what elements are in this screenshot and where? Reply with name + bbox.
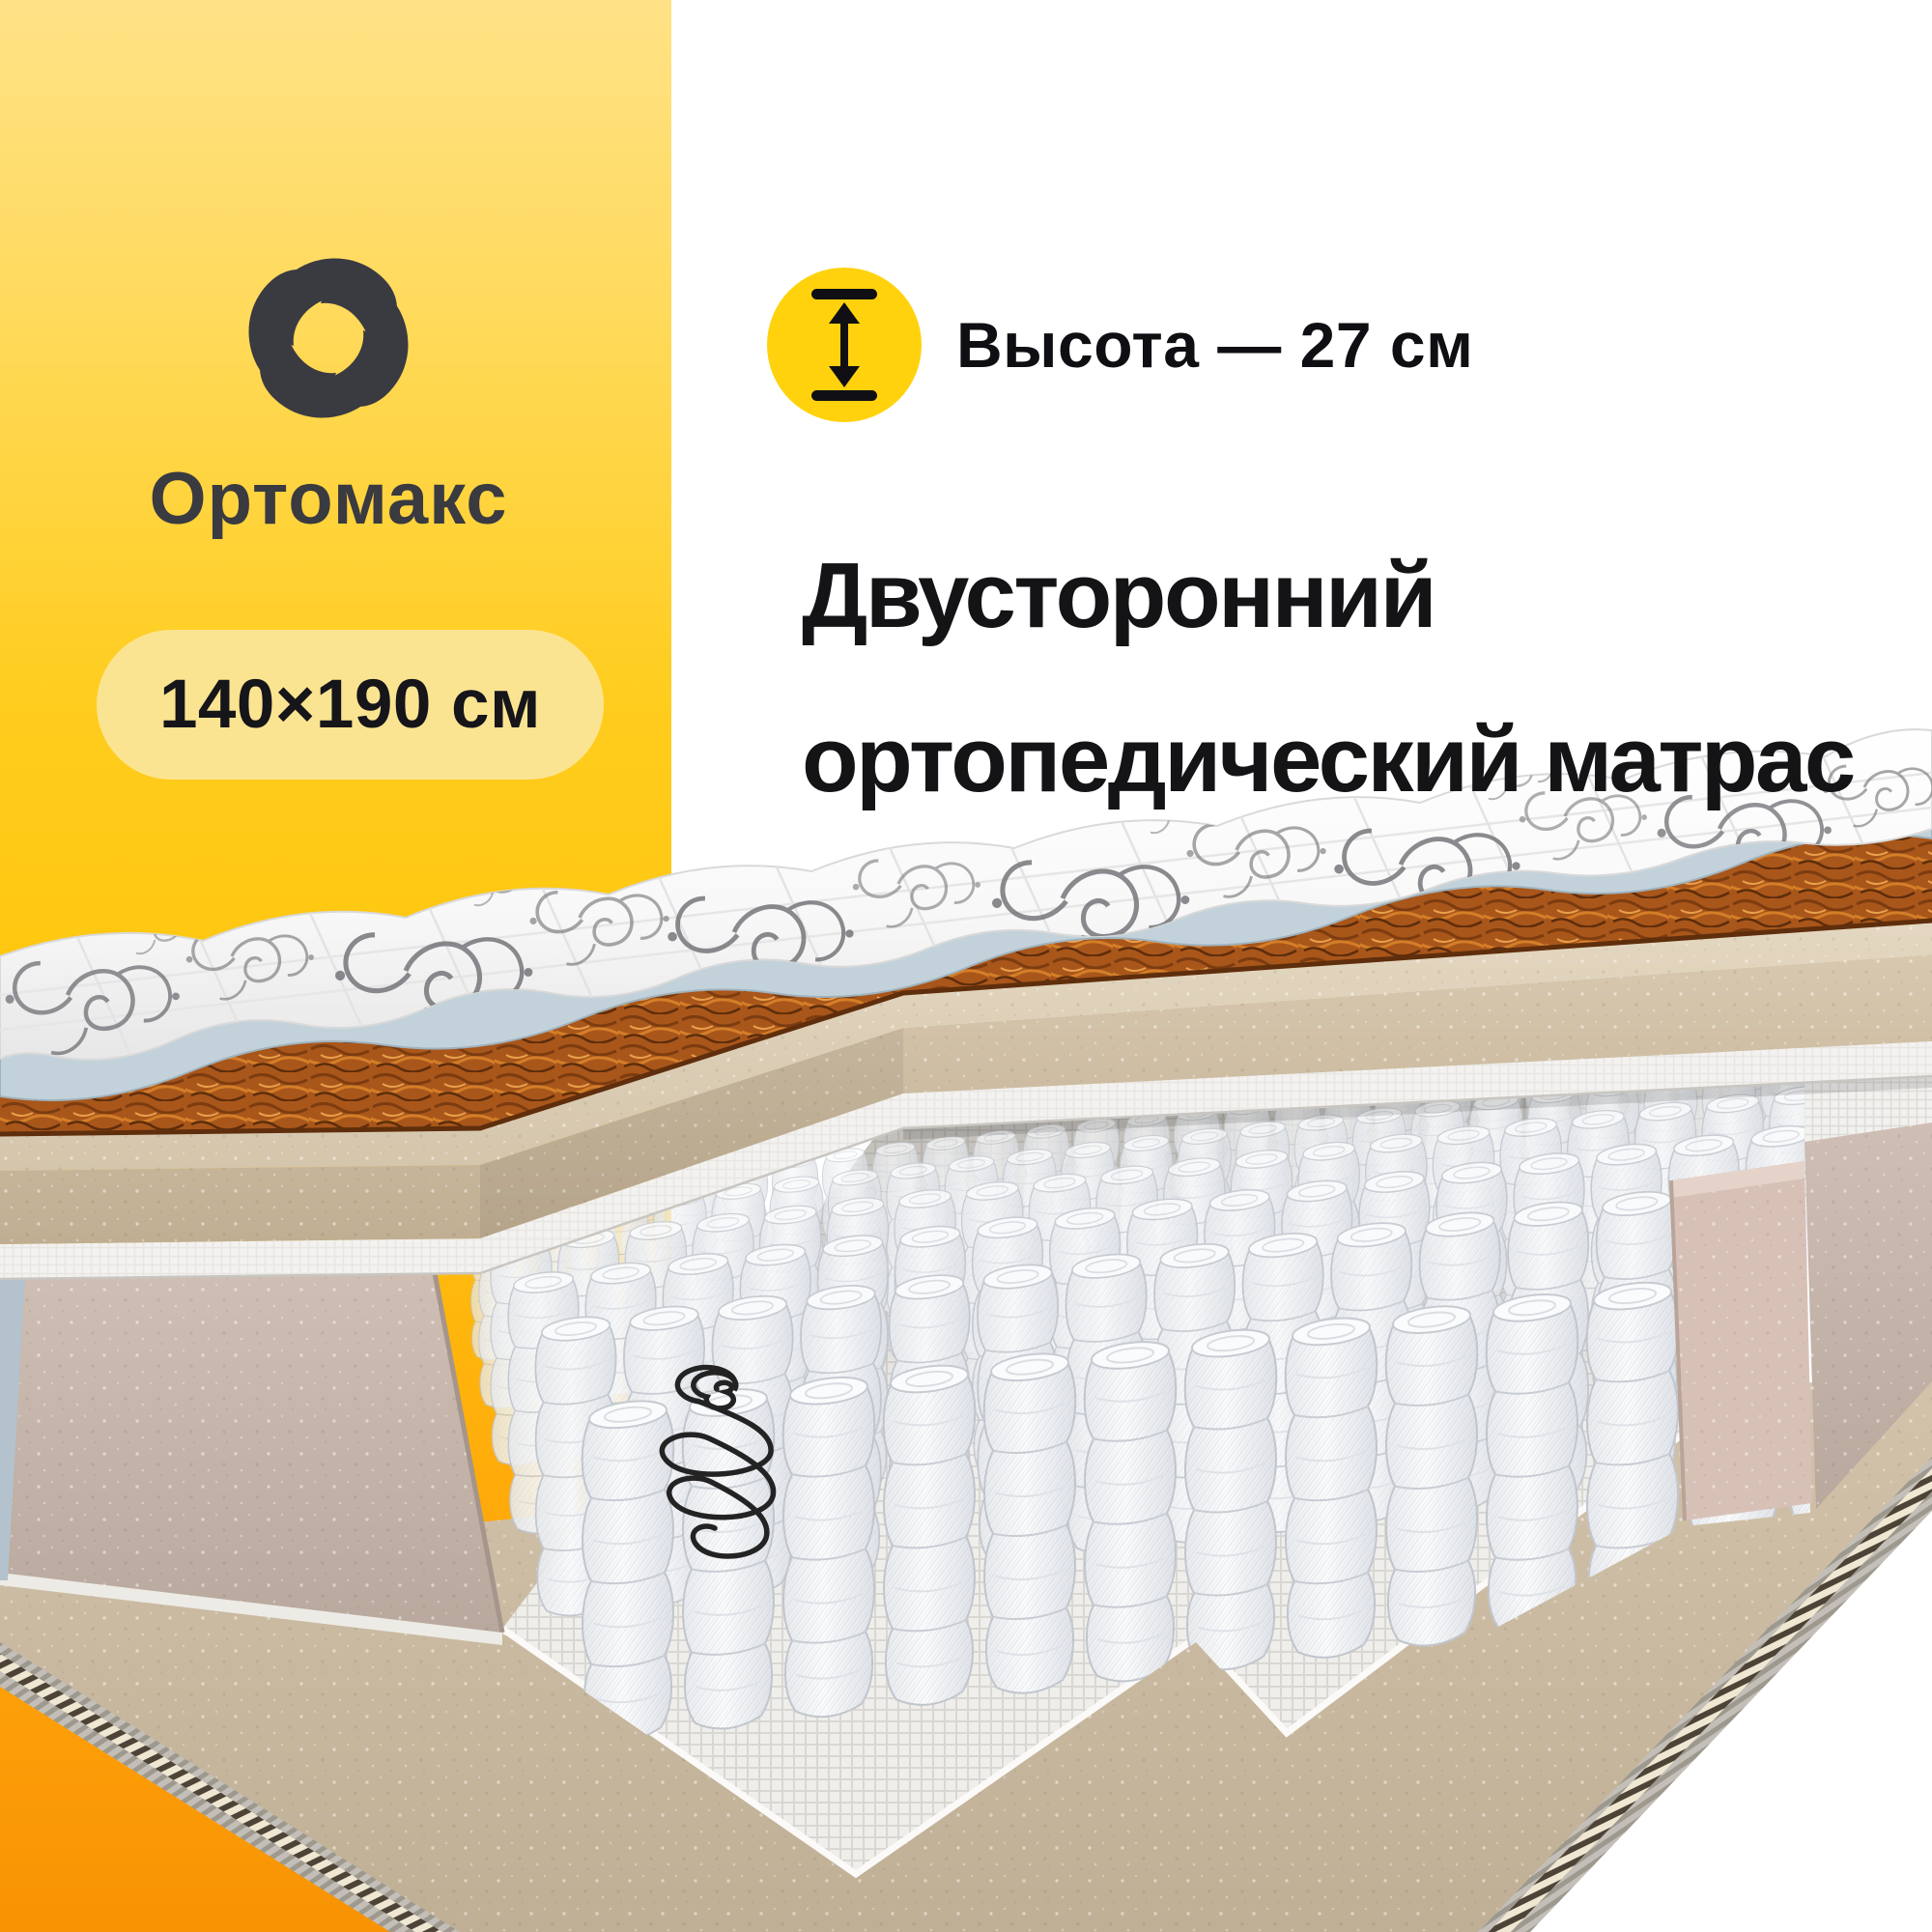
title-line-2: ортопедический матрас	[802, 708, 1854, 811]
product-card: Ортомакс 140×190 см Высота — 27 см Двуст…	[0, 0, 1932, 1932]
height-label: Высота — 27 см	[956, 308, 1473, 382]
title-line-1: Двусторонний	[802, 544, 1435, 647]
left-side-wall	[0, 1248, 502, 1645]
knot-swirl-icon	[232, 241, 425, 435]
brand-name: Ортомакс	[87, 457, 570, 541]
height-feature: Высота — 27 см	[767, 268, 1473, 422]
page-title: Двусторонний ортопедический матрас	[802, 514, 1854, 842]
size-badge: 140×190 см	[97, 630, 604, 780]
size-badge-label: 140×190 см	[159, 666, 541, 744]
brand-logo: Ортомакс	[87, 241, 570, 541]
height-circle-badge	[767, 268, 922, 422]
height-double-arrow-icon	[804, 289, 885, 401]
